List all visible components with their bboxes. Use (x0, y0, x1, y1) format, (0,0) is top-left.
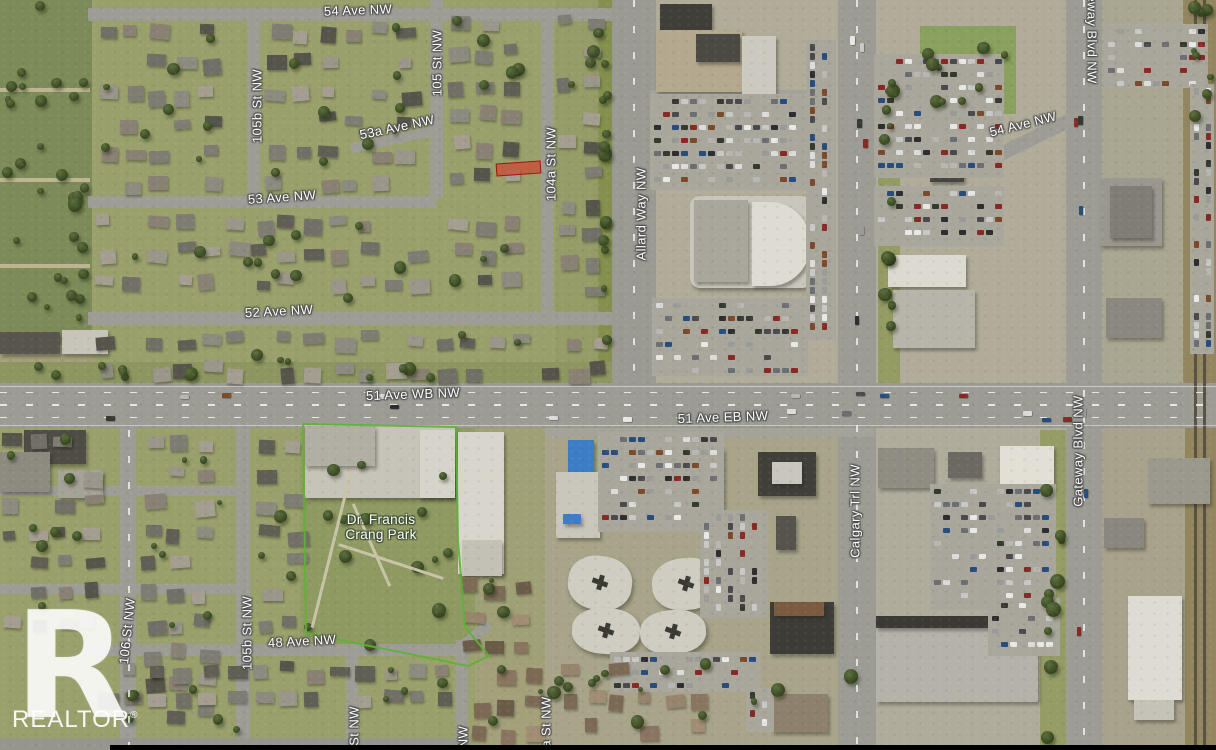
road-label-51-ave-wb-nw: 51 Ave WB NW (366, 386, 461, 402)
park-label-line1: Dr. Francis (345, 512, 416, 527)
road-label-51-ave-eb-nw: 51 Ave EB NW (678, 409, 769, 425)
road-label-gateway-blvd-nw-top: Gateway Blvd NW (1086, 0, 1099, 84)
aerial-map-viewport[interactable]: 54 Ave NW 105b St NW 105 St NW 53a Ave N… (0, 0, 1216, 750)
road-label-105-st-nw: 105 St NW (431, 30, 444, 96)
road-label-105b-st-nw-bottom: 105b St NW (241, 596, 254, 670)
road-label-54-ave-nw-top: 54 Ave NW (324, 2, 393, 17)
road-label-52-ave-nw: 52 Ave NW (245, 303, 314, 320)
road-label-calgary-trl-nw: Calgary Trl NW (849, 464, 862, 558)
bottom-black-bar (110, 745, 1216, 750)
road-label-allard-way-nw: Allard Way NW (635, 168, 648, 261)
road-label-104a-st-nw: 104a St NW (545, 127, 558, 201)
park-label-line2: Crang Park (345, 527, 416, 542)
park-label: Dr. Francis Crang Park (345, 512, 416, 542)
road-label-48-ave-nw: 48 Ave NW (268, 633, 337, 650)
road-label-a-st-nw-cut: a St NW (540, 696, 553, 747)
road-label-st-nw-cut: St NW (348, 706, 361, 746)
road-label-105b-st-nw-top: 105b St NW (251, 69, 264, 143)
road-label-gateway-blvd-nw: Gateway Blvd NW (1072, 395, 1085, 506)
